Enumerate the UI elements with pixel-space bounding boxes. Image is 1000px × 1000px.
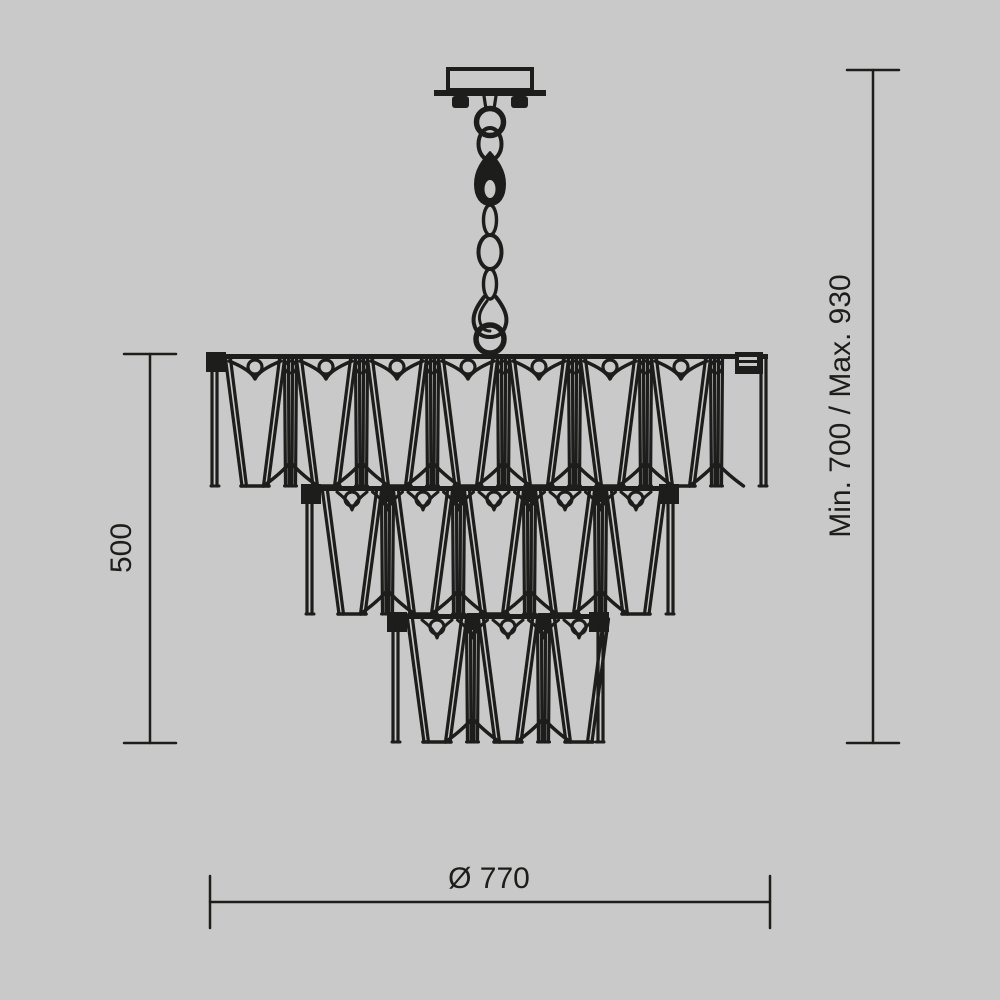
tier-1 bbox=[206, 352, 768, 486]
crystal-tiers bbox=[206, 352, 768, 742]
technical-drawing-canvas: 500 Min. 700 / Max. 930 Ø 770 bbox=[0, 0, 1000, 1000]
dimension-label-height: 500 bbox=[105, 523, 138, 573]
chandelier-dimension-diagram: 500 Min. 700 / Max. 930 Ø 770 bbox=[0, 0, 1000, 1000]
ceiling-canopy bbox=[434, 69, 546, 109]
suspension-chain bbox=[474, 109, 507, 354]
dimension-lines bbox=[124, 70, 899, 928]
tier-3 bbox=[387, 612, 609, 742]
tier-2 bbox=[301, 484, 679, 614]
dimension-label-diameter: Ø 770 bbox=[448, 862, 530, 895]
dimension-label-suspension: Min. 700 / Max. 930 bbox=[824, 274, 857, 537]
